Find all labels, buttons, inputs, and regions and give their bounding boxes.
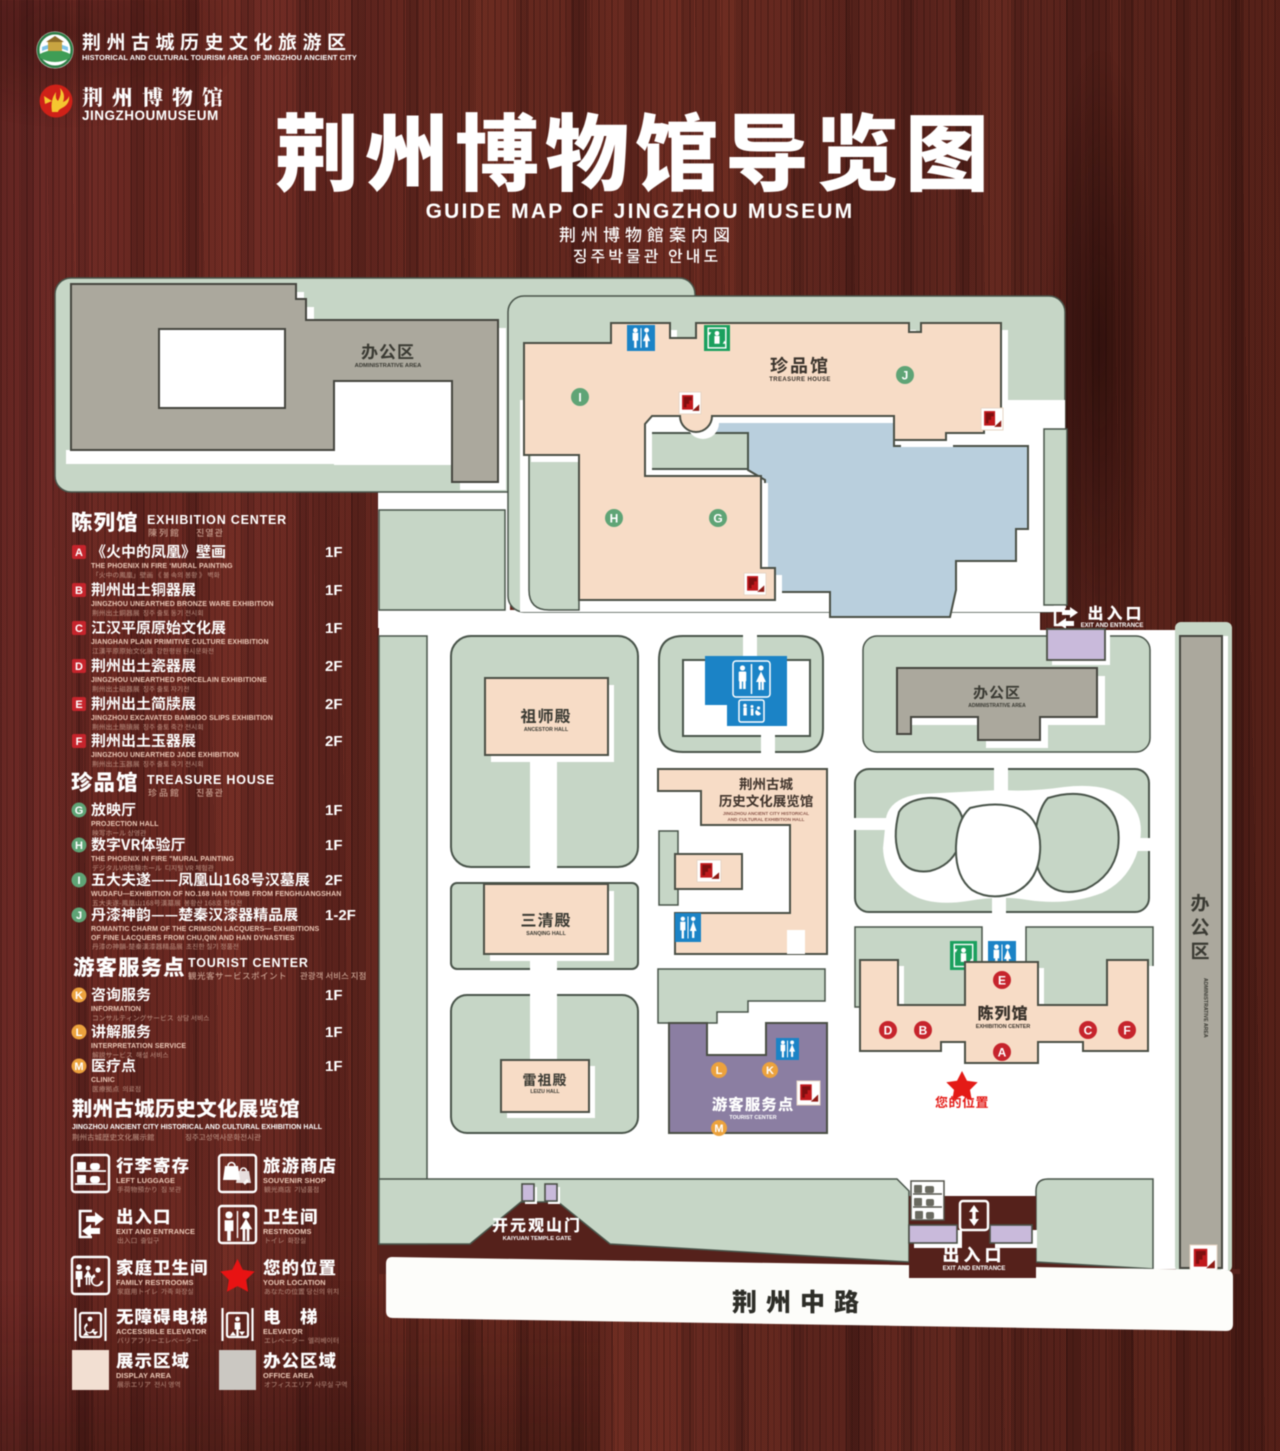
svg-text:EXIT AND ENTRANCE: EXIT AND ENTRANCE [1081, 623, 1144, 629]
svg-text:SOUVENIR SHOP: SOUVENIR SHOP [263, 1176, 326, 1185]
svg-text:1F: 1F [325, 1058, 343, 1075]
svg-text:1F: 1F [325, 1024, 343, 1041]
svg-text:J: J [902, 368, 909, 382]
svg-text:KAIYUAN TEMPLE GATE: KAIYUAN TEMPLE GATE [503, 1236, 572, 1242]
svg-text:EXHIBITION CENTER: EXHIBITION CENTER [147, 513, 287, 527]
svg-text:TREASURE HOUSE: TREASURE HOUSE [147, 773, 275, 787]
svg-text:D: D [884, 1023, 893, 1037]
svg-text:FAMILY RESTROOMS: FAMILY RESTROOMS [116, 1278, 194, 1287]
svg-text:1F: 1F [325, 987, 343, 1004]
svg-text:1F: 1F [325, 582, 343, 599]
svg-text:JINGZHOU UNEARTHED PORCELAIN E: JINGZHOU UNEARTHED PORCELAIN EXHIBITIONE [91, 677, 267, 684]
svg-text:2F: 2F [325, 658, 343, 675]
svg-text:TOURIST CENTER: TOURIST CENTER [729, 1115, 776, 1121]
svg-text:JINGZHOU EXCAVATED BAMBOO SLIP: JINGZHOU EXCAVATED BAMBOO SLIPS EXHIBITI… [91, 715, 273, 722]
svg-text:1-2F: 1-2F [325, 907, 356, 924]
svg-text:G: G [713, 511, 722, 525]
svg-text:CLINIC: CLINIC [91, 1077, 115, 1084]
svg-text:RESTROOMS: RESTROOMS [263, 1227, 312, 1236]
svg-text:I: I [77, 875, 80, 887]
svg-text:I: I [578, 390, 581, 404]
svg-text:E: E [998, 973, 1006, 987]
svg-text:THE PHOENIX IN FIRE "MURAL PAI: THE PHOENIX IN FIRE "MURAL PAINTING [91, 856, 235, 863]
svg-text:EXIT AND ENTRANCE: EXIT AND ENTRANCE [116, 1227, 195, 1236]
svg-text:LEFT LUGGAGE: LEFT LUGGAGE [116, 1176, 175, 1185]
svg-text:H: H [610, 511, 619, 525]
svg-text:DISPLAY AREA: DISPLAY AREA [116, 1371, 172, 1380]
svg-text:JIANGHAN PLAIN PRIMITIVE CULTU: JIANGHAN PLAIN PRIMITIVE CULTURE EXHIBIT… [91, 639, 269, 646]
svg-text:GUIDE MAP OF JINGZHOU MUSEUM: GUIDE MAP OF JINGZHOU MUSEUM [426, 200, 855, 223]
svg-text:M: M [714, 1123, 723, 1135]
svg-text:JINGZHOUMUSEUM: JINGZHOUMUSEUM [82, 108, 219, 123]
svg-text:THE PHOENIX IN FIRE ‘MURAL PAI: THE PHOENIX IN FIRE ‘MURAL PAINTING [91, 563, 233, 570]
svg-text:SANQING HALL: SANQING HALL [526, 931, 566, 937]
svg-text:TOURIST CENTER: TOURIST CENTER [188, 956, 309, 970]
svg-text:YOUR LOCATION: YOUR LOCATION [263, 1278, 326, 1287]
svg-text:OF FINE LACQUERS FROM CHU,QIN: OF FINE LACQUERS FROM CHU,QIN AND HAN DY… [91, 935, 295, 942]
svg-text:C: C [75, 623, 83, 635]
svg-text:K: K [766, 1065, 774, 1077]
svg-text:1F: 1F [325, 544, 343, 561]
svg-text:JINGZHOU ANCIENT CITY HISTORIC: JINGZHOU ANCIENT CITY HISTORICAL [723, 811, 809, 816]
svg-text:C: C [1084, 1023, 1093, 1037]
svg-text:A: A [998, 1045, 1007, 1059]
svg-text:HISTORICAL AND CULTURAL TOURIS: HISTORICAL AND CULTURAL TOURISM AREA OF … [82, 53, 357, 62]
svg-text:EXHIBITION CENTER: EXHIBITION CENTER [976, 1024, 1031, 1030]
svg-text:G: G [75, 805, 84, 817]
svg-text:AND CULTURAL EXHIBITION HALL: AND CULTURAL EXHIBITION HALL [728, 817, 805, 822]
svg-text:L: L [716, 1065, 723, 1077]
svg-text:L: L [76, 1027, 83, 1039]
svg-text:H: H [75, 840, 83, 852]
svg-text:ADMINISTRATIVE AREA: ADMINISTRATIVE AREA [968, 703, 1026, 709]
svg-text:F: F [1123, 1023, 1130, 1037]
svg-text:1F: 1F [325, 802, 343, 819]
svg-text:PROJECTION HALL: PROJECTION HALL [91, 821, 159, 828]
svg-text:ANCESTOR HALL: ANCESTOR HALL [524, 727, 569, 733]
svg-text:WUDAFU—EXHIBITION OF NO.168 HA: WUDAFU—EXHIBITION OF NO.168 HAN TOMB FRO… [91, 891, 341, 898]
svg-text:2F: 2F [325, 696, 343, 713]
svg-text:INTERPRETATION SERVICE: INTERPRETATION SERVICE [91, 1043, 186, 1050]
svg-text:ELEVATOR: ELEVATOR [263, 1327, 303, 1336]
svg-text:JINGZHOU UNEARTHED JADE EXHIBI: JINGZHOU UNEARTHED JADE EXHIBITION [91, 752, 239, 759]
svg-text:F: F [76, 736, 83, 748]
svg-text:M: M [74, 1061, 83, 1073]
svg-text:B: B [919, 1023, 928, 1037]
svg-text:1F: 1F [325, 620, 343, 637]
svg-text:D: D [75, 661, 83, 673]
svg-text:ROMANTIC CHARM OF THE CRIMSON: ROMANTIC CHARM OF THE CRIMSON LACQUERS— … [91, 926, 320, 933]
svg-text:ADMINISTRATIVE AREA: ADMINISTRATIVE AREA [1202, 978, 1208, 1038]
svg-text:OFFICE AREA: OFFICE AREA [263, 1371, 314, 1380]
svg-text:1F: 1F [325, 837, 343, 854]
svg-text:JINGZHOU UNEARTHED BRONZE WARE: JINGZHOU UNEARTHED BRONZE WARE EXHIBITIO… [91, 601, 274, 608]
svg-text:TREASURE HOUSE: TREASURE HOUSE [769, 377, 831, 383]
svg-text:INFORMATION: INFORMATION [91, 1006, 141, 1013]
svg-text:ACCESSIBLE ELEVATOR: ACCESSIBLE ELEVATOR [116, 1327, 207, 1336]
svg-text:2F: 2F [325, 872, 343, 889]
svg-text:J: J [76, 910, 82, 922]
svg-text:2F: 2F [325, 733, 343, 750]
svg-text:ADMINISTRATIVE AREA: ADMINISTRATIVE AREA [355, 363, 422, 369]
svg-text:EXIT AND ENTRANCE: EXIT AND ENTRANCE [943, 1266, 1006, 1272]
svg-text:B: B [75, 585, 83, 597]
svg-text:LEIZU HALL: LEIZU HALL [530, 1089, 559, 1095]
svg-text:JINGZHOU ANCIENT CITY HISTORIC: JINGZHOU ANCIENT CITY HISTORICAL AND CUL… [72, 1124, 323, 1131]
svg-text:E: E [75, 699, 82, 711]
svg-text:K: K [75, 990, 83, 1002]
svg-text:A: A [75, 547, 83, 559]
